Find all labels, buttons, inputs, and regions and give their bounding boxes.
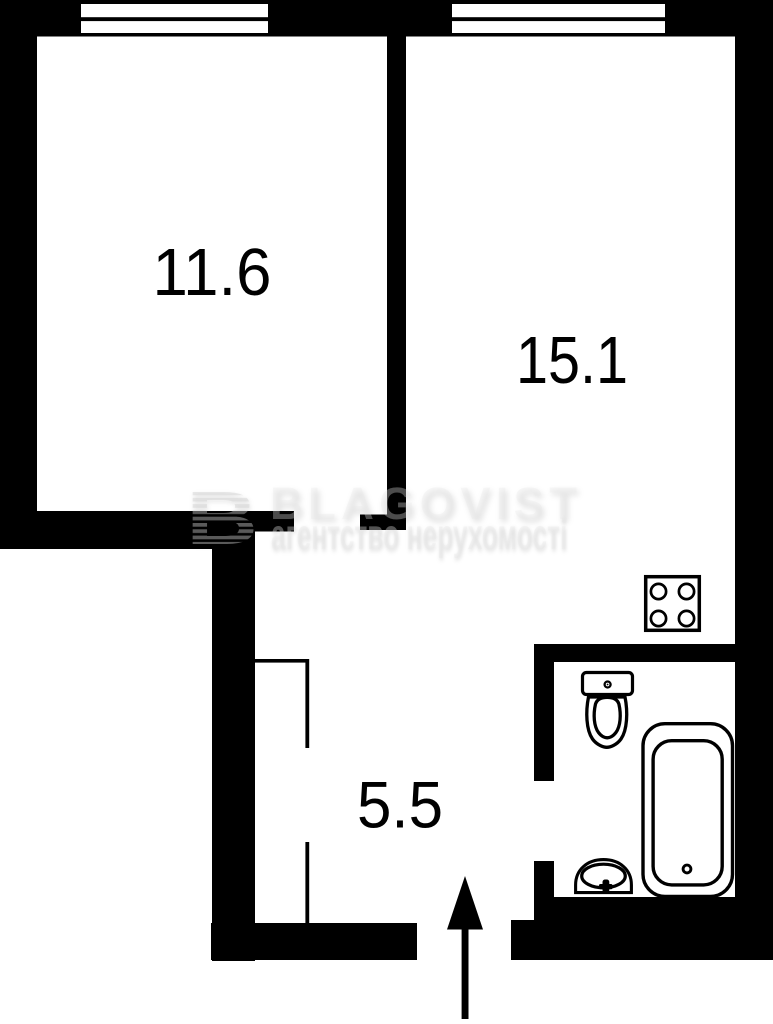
svg-text:15.1: 15.1: [516, 323, 628, 398]
svg-text:B: B: [186, 476, 258, 560]
svg-text:11.6: 11.6: [153, 235, 272, 310]
svg-text:агентство нерухомості: агентство нерухомості: [271, 512, 567, 559]
svg-text:5.5: 5.5: [357, 768, 443, 842]
